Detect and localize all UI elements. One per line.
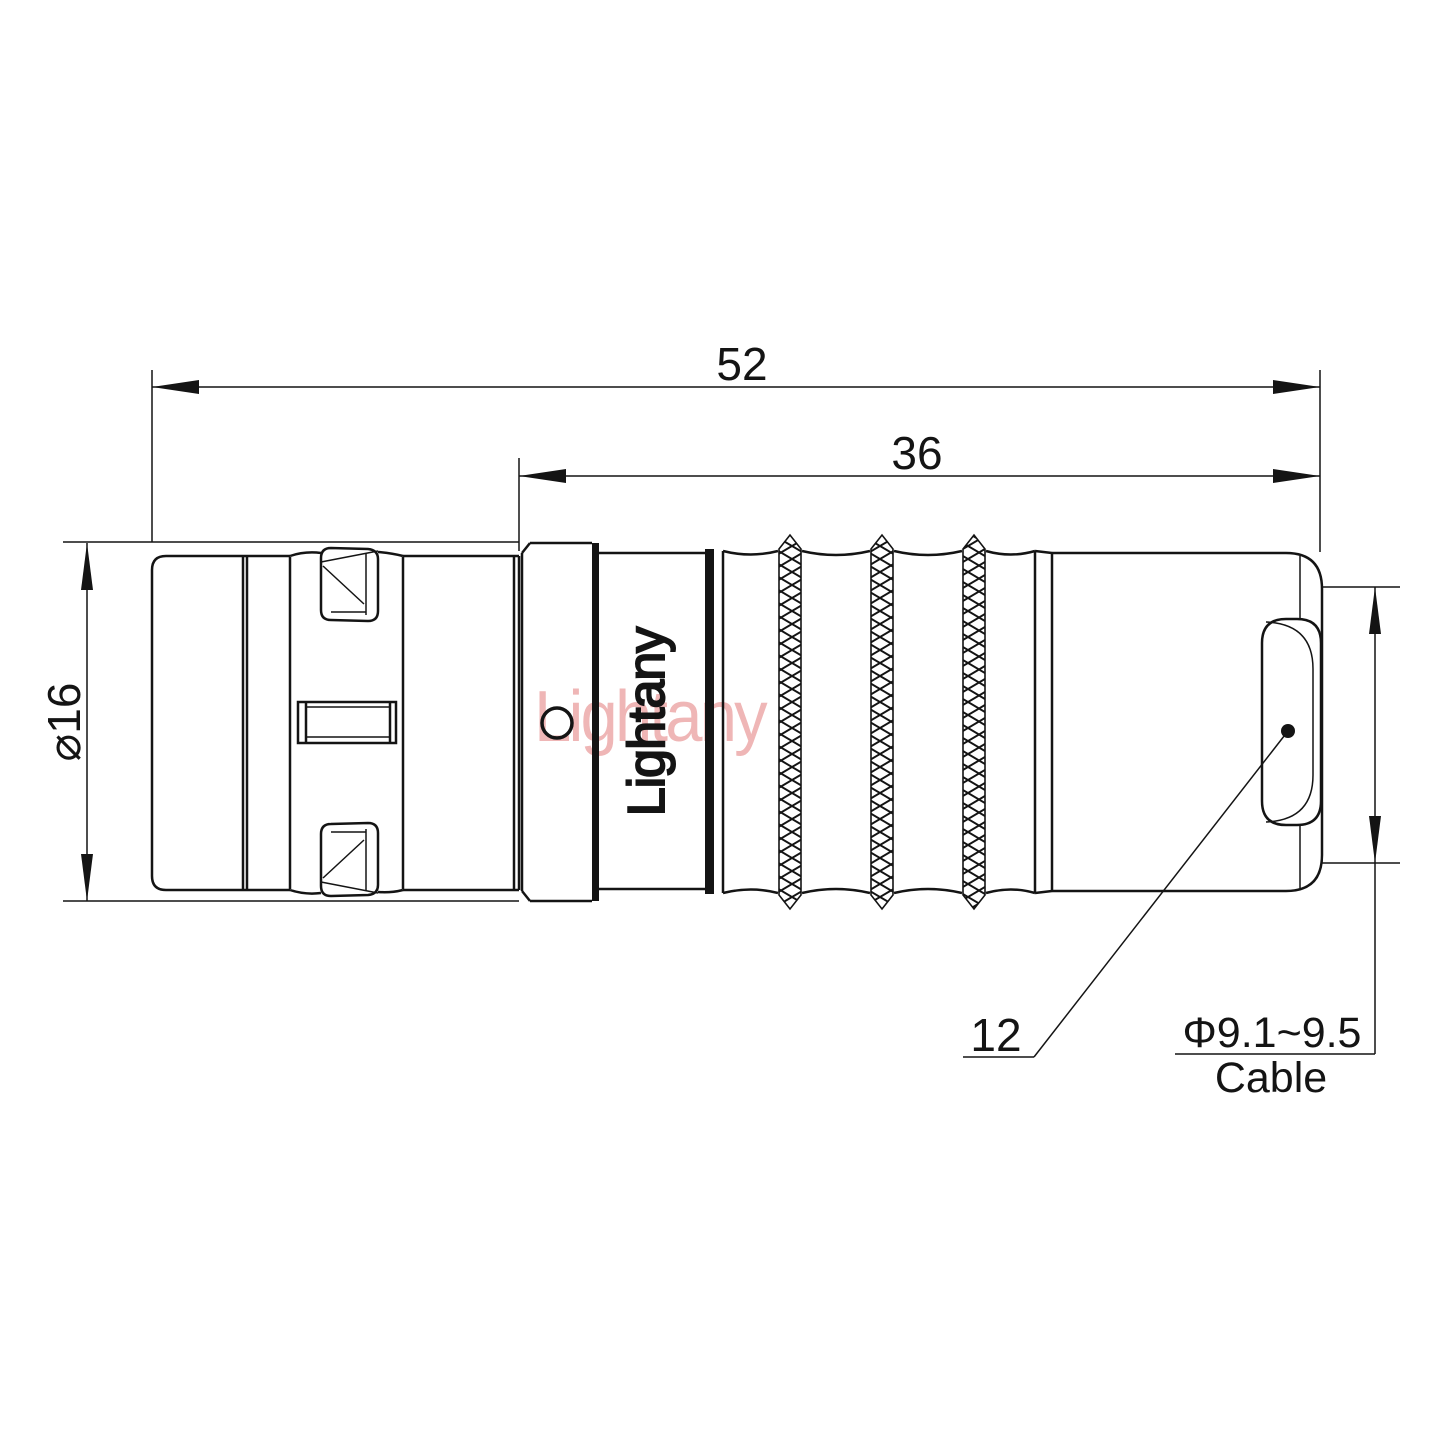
drawing-page: Lightany 52 36 [0, 0, 1440, 1440]
cable-range-value: Φ9.1~9.5 [1183, 1009, 1362, 1057]
dimension-overall-length: 52 [152, 338, 1320, 552]
knurl-section [723, 535, 1052, 909]
knurl-band [871, 535, 893, 909]
logo-section: Lightany [599, 549, 714, 894]
dim-52-value: 52 [716, 338, 767, 390]
connector-technical-drawing: 52 36 ⌀16 12 [0, 0, 1440, 1440]
connector-body: Lightany [152, 535, 1322, 909]
cable-label: Cable [1215, 1054, 1327, 1102]
label-cable: Φ9.1~9.5 Cable [1175, 863, 1375, 1102]
label-12-value: 12 [970, 1009, 1021, 1061]
dimension-sleeve-diameter [1322, 587, 1400, 863]
dim-16-value: ⌀16 [38, 683, 90, 762]
dimension-rear-length: 36 [519, 427, 1320, 551]
coupling-nut [152, 548, 519, 896]
sleeve-slot [1262, 619, 1321, 825]
latch-flap-top [321, 548, 378, 621]
dimension-body-diameter: ⌀16 [38, 542, 519, 901]
mid-collar [522, 543, 599, 901]
engraved-logo: Lightany [618, 627, 676, 817]
leader-dot [1281, 724, 1295, 738]
cable-sleeve [1052, 553, 1322, 891]
slot-bridge [298, 702, 396, 743]
knurl-band [779, 535, 801, 909]
dim-36-value: 36 [891, 427, 942, 479]
vent-hole [542, 708, 572, 738]
latch-flap-bottom [321, 823, 378, 896]
knurl-band [963, 535, 985, 909]
